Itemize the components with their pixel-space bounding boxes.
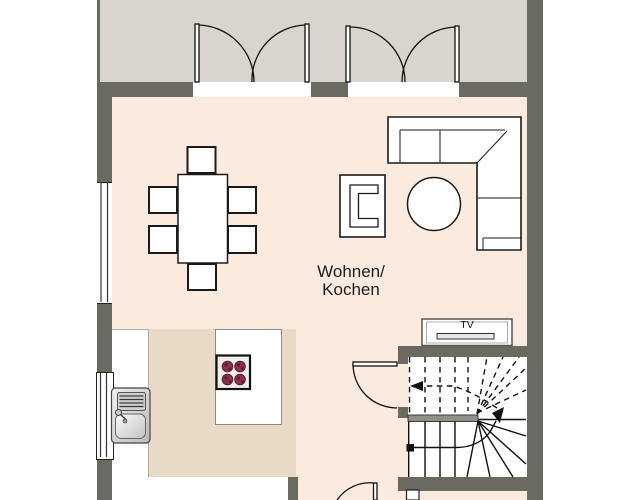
stairs-upper-flight <box>410 357 527 414</box>
stairs-lower-flight <box>409 420 526 478</box>
dining-table <box>178 175 228 264</box>
round-coffee-table <box>408 178 461 231</box>
bottom-door <box>337 483 377 500</box>
floor-plan: Wohnen/ Kochen TV <box>0 0 636 500</box>
tv-label: TV <box>422 320 512 331</box>
room-label: Wohnen/ Kochen <box>295 263 407 299</box>
bottom-jamb <box>407 490 420 500</box>
room-label-line2: Kochen <box>295 281 407 299</box>
room-label-line1: Wohnen/ <box>295 263 407 281</box>
stair-handrail <box>408 415 478 422</box>
french-door-left <box>195 24 309 82</box>
stair-door <box>353 362 397 408</box>
tv-screen <box>437 334 494 340</box>
sink-drainer <box>118 393 146 411</box>
sink <box>112 388 151 443</box>
cooktop <box>217 356 251 390</box>
plan-symbols <box>0 0 636 500</box>
sink-basin <box>116 414 146 439</box>
stairs-walkline-start <box>407 444 415 452</box>
french-door-right <box>346 26 459 82</box>
stairs-up-arrow <box>410 381 423 391</box>
window-glazing <box>101 182 108 457</box>
winder-staircase <box>407 357 527 477</box>
corner-sofa <box>388 117 521 250</box>
armchair <box>340 175 385 237</box>
stairs-walkline-arrow <box>492 407 504 423</box>
